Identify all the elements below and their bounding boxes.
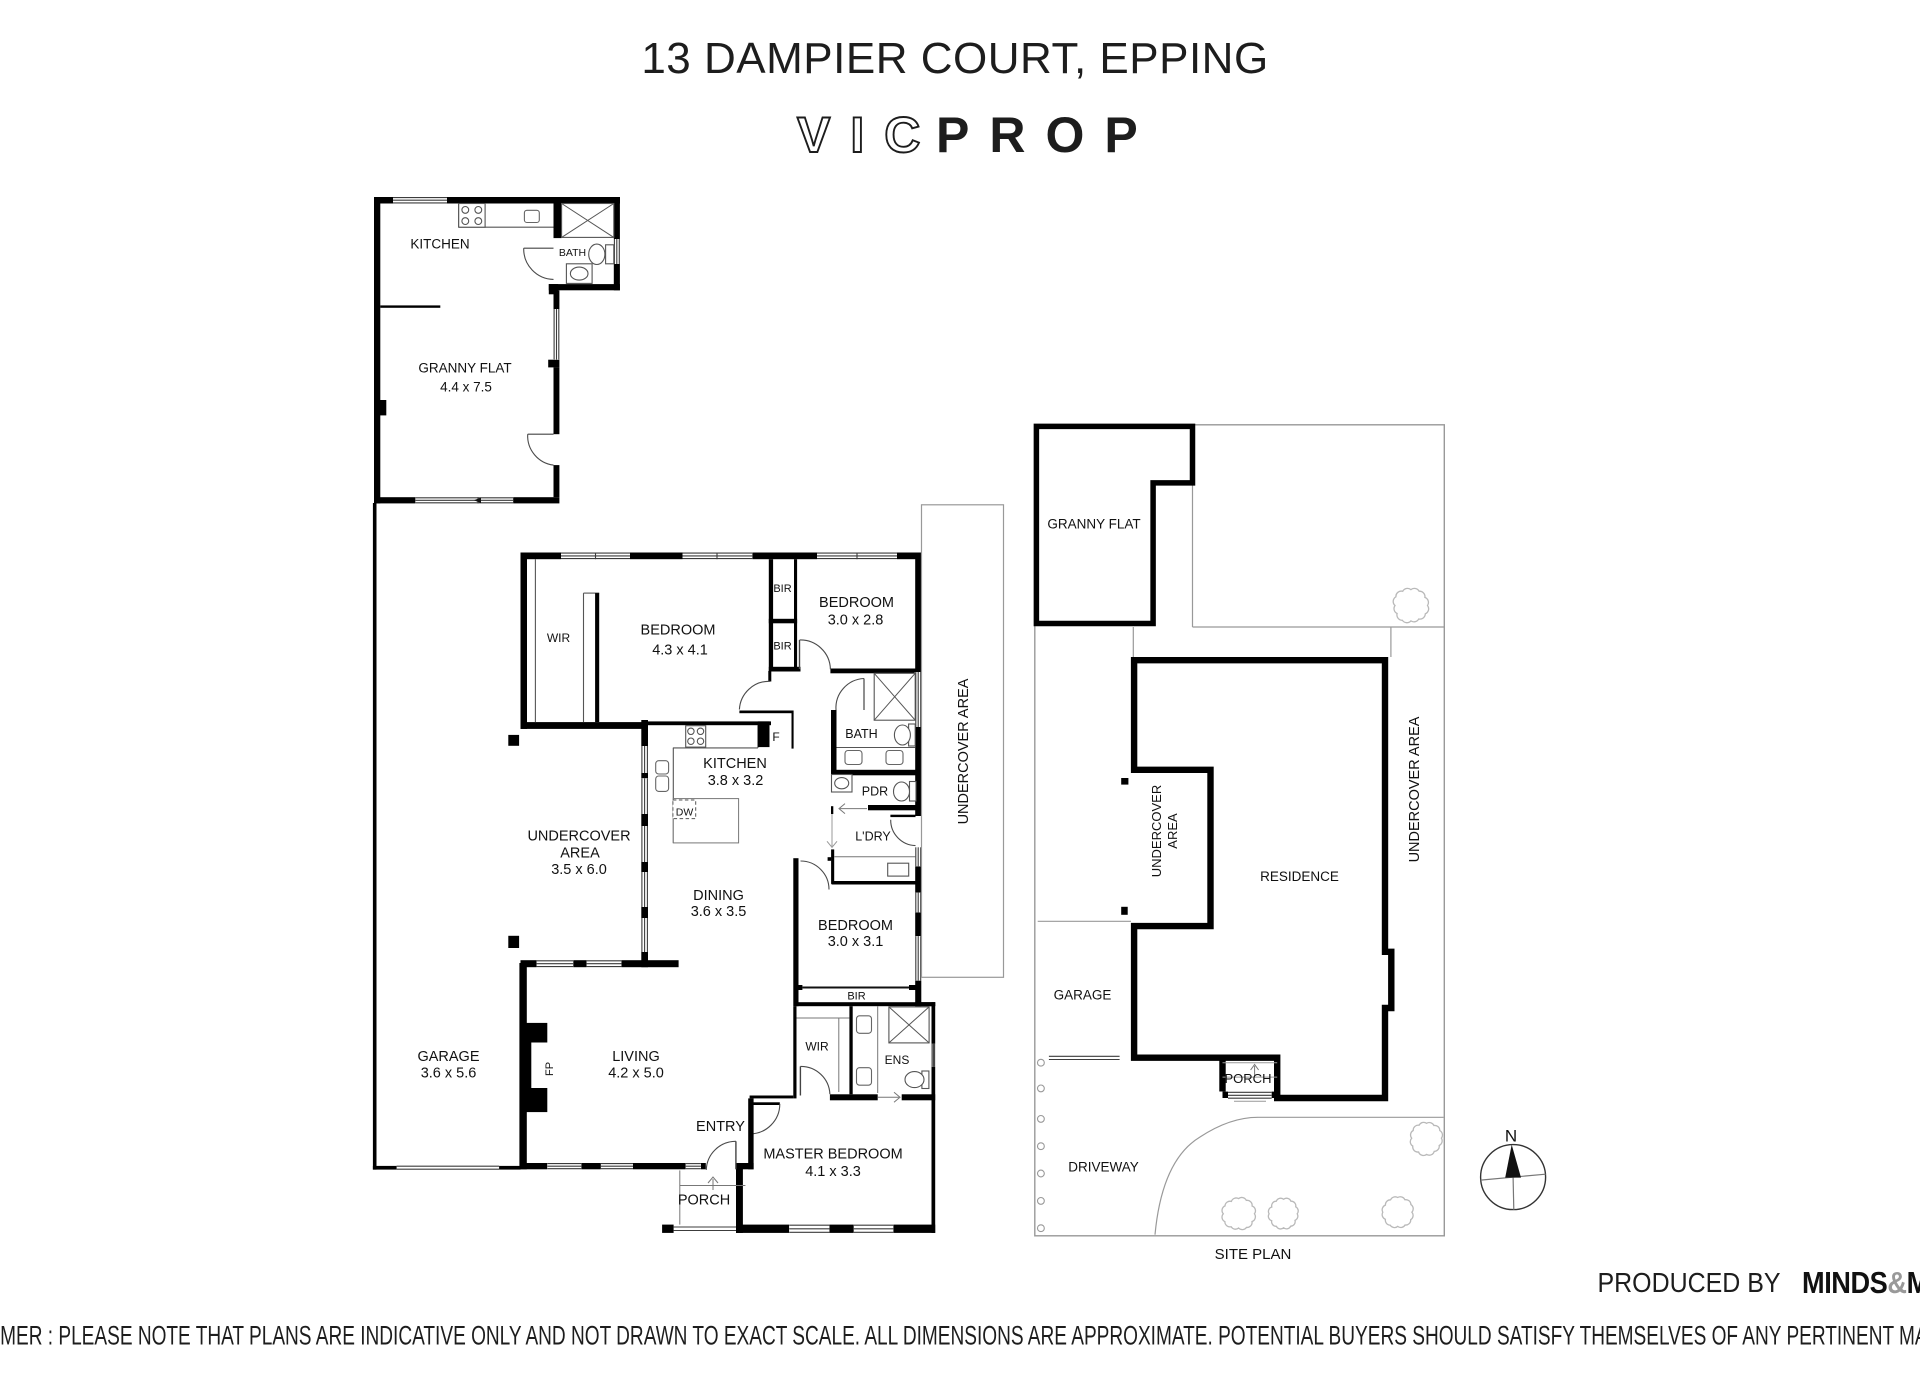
- svg-text:WIR: WIR: [805, 1040, 829, 1054]
- svg-text:BIR: BIR: [773, 641, 791, 653]
- svg-text:ENTRY: ENTRY: [696, 1119, 745, 1135]
- svg-text:WIR: WIR: [547, 631, 571, 645]
- svg-text:3.0 x 3.1: 3.0 x 3.1: [828, 934, 884, 950]
- svg-text:4.2 x 5.0: 4.2 x 5.0: [608, 1066, 664, 1082]
- svg-text:GRANNY FLAT: GRANNY FLAT: [1047, 517, 1140, 532]
- svg-text:MINDS&MACHINES: MINDS&MACHINES: [1802, 1266, 1920, 1300]
- svg-text:DW: DW: [676, 807, 694, 819]
- svg-text:DINING: DINING: [693, 888, 744, 904]
- svg-text:UNDERCOVER: UNDERCOVER: [1149, 785, 1164, 877]
- svg-text:3.6 x 5.6: 3.6 x 5.6: [421, 1066, 477, 1082]
- svg-text:PRODUCED BY: PRODUCED BY: [1598, 1267, 1781, 1298]
- svg-text:BEDROOM: BEDROOM: [818, 918, 893, 934]
- svg-text:KITCHEN: KITCHEN: [410, 237, 469, 252]
- svg-text:GARAGE: GARAGE: [417, 1049, 479, 1065]
- svg-text:PDR: PDR: [862, 785, 888, 799]
- svg-text:3.5 x 6.0: 3.5 x 6.0: [551, 862, 607, 878]
- svg-text:UNDERCOVER AREA: UNDERCOVER AREA: [1407, 716, 1423, 862]
- svg-text:RESIDENCE: RESIDENCE: [1260, 869, 1339, 884]
- svg-text:3.6 x 3.5: 3.6 x 3.5: [691, 904, 747, 920]
- svg-text:UNDERCOVER AREA: UNDERCOVER AREA: [956, 678, 972, 824]
- svg-text:N: N: [1505, 1127, 1517, 1146]
- svg-text:BATH: BATH: [559, 247, 586, 259]
- svg-text:13 DAMPIER COURT, EPPING: 13 DAMPIER COURT, EPPING: [641, 34, 1268, 83]
- svg-text:L'DRY: L'DRY: [855, 830, 891, 844]
- svg-text:ENS: ENS: [885, 1053, 910, 1067]
- svg-text:MASTER BEDROOM: MASTER BEDROOM: [763, 1147, 902, 1163]
- svg-text:FP: FP: [544, 1062, 556, 1076]
- svg-text:UNDERCOVER: UNDERCOVER: [527, 829, 630, 845]
- svg-text:BEDROOM: BEDROOM: [819, 595, 894, 611]
- svg-text:GARAGE: GARAGE: [1054, 988, 1112, 1003]
- svg-text:BIR: BIR: [847, 991, 865, 1003]
- svg-text:3.8 x 3.2: 3.8 x 3.2: [708, 773, 764, 789]
- svg-text:4.4 x 7.5: 4.4 x 7.5: [440, 380, 492, 395]
- svg-text:BEDROOM: BEDROOM: [641, 623, 716, 639]
- svg-text:PORCH: PORCH: [678, 1193, 730, 1209]
- svg-text:KITCHEN: KITCHEN: [703, 756, 767, 772]
- svg-text:BATH: BATH: [845, 727, 877, 741]
- svg-text:DISCLAIMER : PLEASE NOTE THAT: DISCLAIMER : PLEASE NOTE THAT PLANS ARE …: [0, 1320, 1920, 1351]
- svg-text:DRIVEWAY: DRIVEWAY: [1068, 1160, 1139, 1175]
- svg-text:SITE PLAN: SITE PLAN: [1215, 1246, 1292, 1263]
- svg-text:3.0 x 2.8: 3.0 x 2.8: [828, 613, 884, 629]
- svg-text:AREA: AREA: [560, 846, 600, 862]
- svg-text:4.3 x 4.1: 4.3 x 4.1: [652, 643, 708, 659]
- svg-text:AREA: AREA: [1165, 813, 1180, 849]
- svg-text:PORCH: PORCH: [1225, 1071, 1272, 1086]
- svg-text:PROP: PROP: [936, 107, 1158, 163]
- svg-text:GRANNY FLAT: GRANNY FLAT: [418, 361, 511, 376]
- svg-text:BIR: BIR: [773, 583, 791, 595]
- svg-text:4.1 x 3.3: 4.1 x 3.3: [805, 1164, 861, 1180]
- svg-text:F: F: [772, 730, 779, 744]
- svg-text:LIVING: LIVING: [612, 1049, 660, 1065]
- svg-text:VIC: VIC: [797, 107, 940, 163]
